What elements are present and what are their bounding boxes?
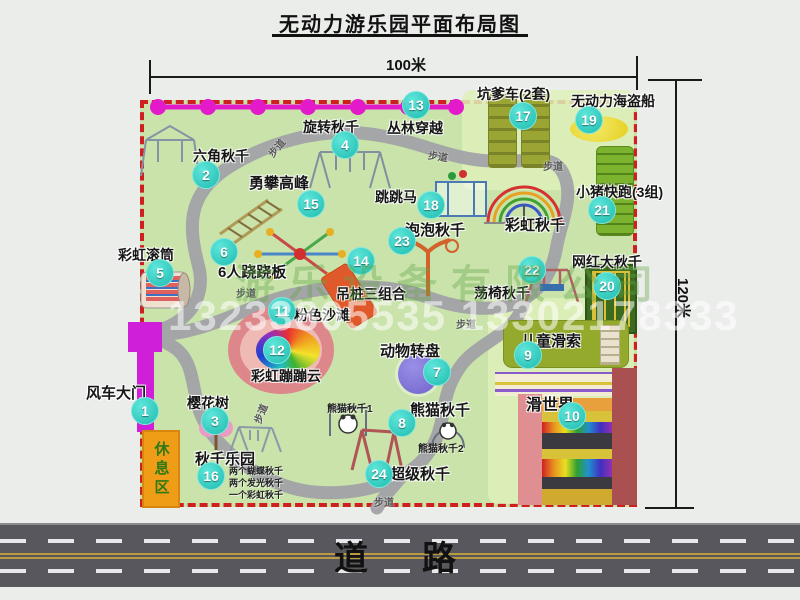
attraction-badge-21: 21 <box>588 196 616 224</box>
attraction-note-8-1: 熊猫秋千1 <box>327 400 373 415</box>
slide-world-strip-6 <box>542 459 612 477</box>
attraction-badge-13: 13 <box>402 91 430 119</box>
attraction-badge-5: 5 <box>146 259 174 287</box>
slide-world-strip-4 <box>542 433 612 449</box>
attraction-badge-6: 6 <box>210 238 238 266</box>
attraction-badge-11: 11 <box>268 297 296 325</box>
attraction-badge-4: 4 <box>331 131 359 159</box>
attraction-badge-3: 3 <box>201 407 229 435</box>
dimension-top-label: 100米 <box>386 54 426 75</box>
attraction-badge-10: 10 <box>558 402 586 430</box>
attraction-label-11: 粉色沙滩 <box>294 305 350 325</box>
rest-area-label: 休息区 <box>151 441 172 498</box>
road-label: 道 路 <box>0 531 800 580</box>
attraction-note-8-2: 熊猫秋千2 <box>418 440 464 455</box>
slide-world-strip-5 <box>542 449 612 459</box>
attraction-label-8: 熊猫秋千 <box>410 399 470 420</box>
attraction-badge-8: 8 <box>388 409 416 437</box>
zipline-ladder-icon <box>600 325 620 365</box>
attraction-label-rainbow-swing: 彩虹秋千 <box>505 214 565 235</box>
attraction-label-24: 超级秋千 <box>390 463 450 484</box>
attraction-label-21: 小猪快跑(3组) <box>576 182 663 202</box>
walkway-label-4: 步道 <box>236 285 256 300</box>
slide-world-right-band <box>612 368 637 505</box>
attraction-label-17: 坑爹车(2套) <box>477 84 550 104</box>
windmill-gate-top <box>128 322 162 352</box>
attraction-badge-7: 7 <box>423 358 451 386</box>
attraction-badge-20: 20 <box>593 272 621 300</box>
attraction-badge-12: 12 <box>263 336 291 364</box>
attraction-label-15: 勇攀高峰 <box>249 172 309 193</box>
page-title: 无动力游乐园平面布局图 <box>0 8 800 37</box>
dimension-right-label: 120米 <box>673 278 694 318</box>
attraction-note-16-3: 一个彩虹秋千 <box>229 488 283 501</box>
attraction-label-7: 动物转盘 <box>380 340 440 361</box>
attraction-label-13: 丛林穿越 <box>387 118 443 138</box>
attraction-badge-24: 24 <box>365 460 393 488</box>
attraction-badge-23: 23 <box>388 227 416 255</box>
attraction-label-20: 网红大秋千 <box>572 252 642 272</box>
attraction-label-14: 吊桩三组合 <box>336 284 406 304</box>
attraction-badge-22: 22 <box>518 256 546 284</box>
attraction-badge-14: 14 <box>347 247 375 275</box>
attraction-badge-15: 15 <box>297 190 325 218</box>
slide-world-strip-7 <box>542 477 612 489</box>
title-underline <box>272 34 528 37</box>
attraction-label-22: 荡椅秋千 <box>474 283 530 303</box>
attraction-badge-17: 17 <box>509 102 537 130</box>
attraction-badge-2: 2 <box>192 161 220 189</box>
attraction-badge-1: 1 <box>131 397 159 425</box>
attraction-badge-18: 18 <box>417 191 445 219</box>
park-layout-page: { "title": "无动力游乐园平面布局图", "dimensions": … <box>0 0 800 600</box>
slide-world-strip-8 <box>542 489 612 505</box>
rest-area-box: 休息区 <box>142 430 180 508</box>
attraction-badge-9: 9 <box>514 341 542 369</box>
attraction-label-12: 彩虹蹦蹦云 <box>251 366 321 386</box>
walkway-label-7: 步道 <box>374 494 394 509</box>
walkway-label-5: 步道 <box>456 316 476 331</box>
attraction-label-18: 跳跳马 <box>375 187 417 207</box>
walkway-label-3: 步道 <box>543 158 563 173</box>
attraction-badge-19: 19 <box>575 106 603 134</box>
walkway-label-2: 步道 <box>427 147 449 165</box>
attraction-badge-16: 16 <box>197 462 225 490</box>
